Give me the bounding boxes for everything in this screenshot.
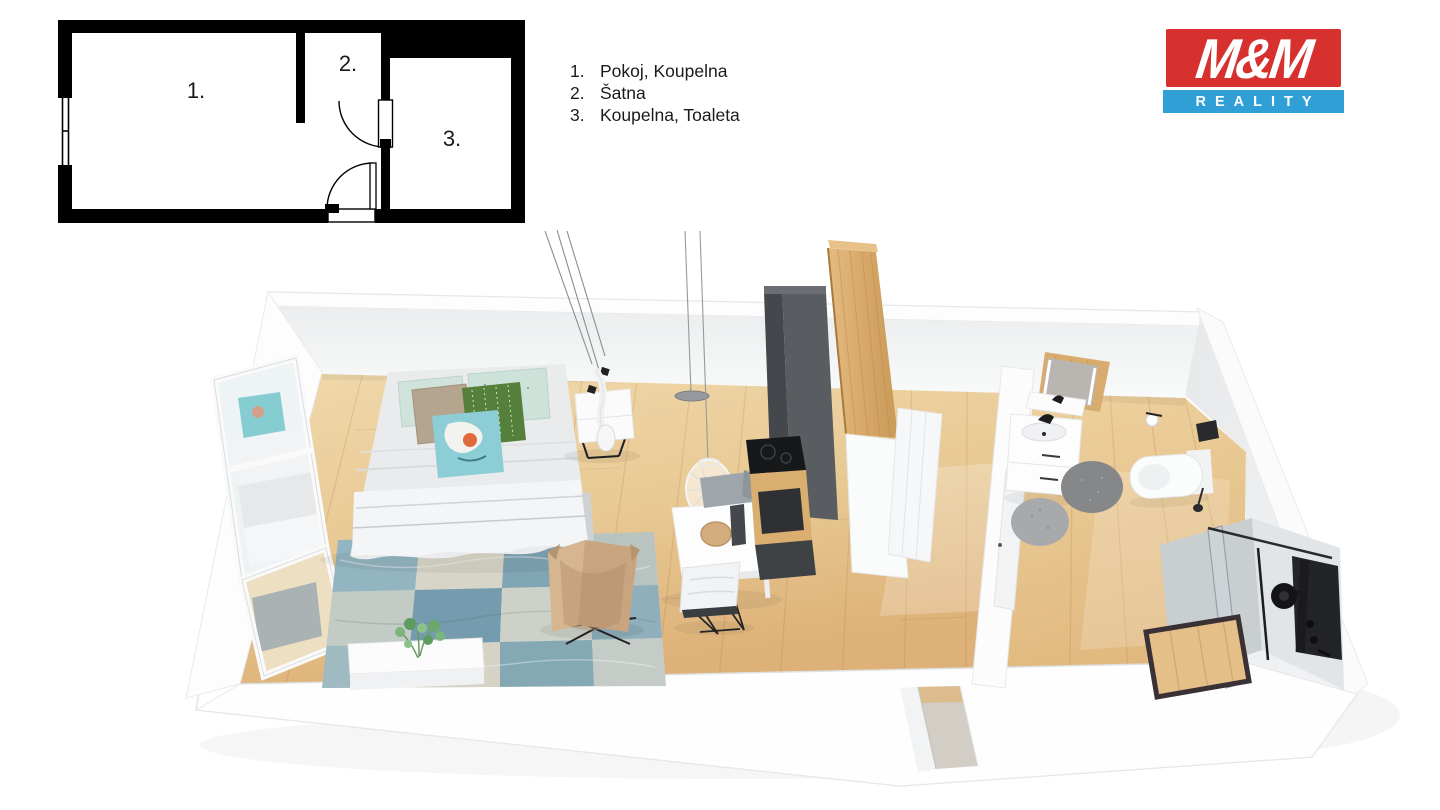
legend-item: 3. Koupelna, Toaleta <box>570 104 740 126</box>
room1-number: 1. <box>187 78 205 103</box>
plan-walls <box>58 20 525 223</box>
chair-cloth <box>680 562 740 612</box>
plan-room-numbers: 1. 2. 3. <box>187 51 461 151</box>
cooktop <box>746 436 806 474</box>
legend-item: 1. Pokoj, Koupelna <box>570 60 740 82</box>
logo-subtitle: REALITY <box>1186 94 1320 110</box>
legend-item-label: Šatna <box>600 82 646 104</box>
plan-door-entrance <box>325 163 376 222</box>
door-handle <box>998 543 1002 547</box>
legend-item-number: 3. <box>570 104 600 126</box>
legend: 1. Pokoj, Koupelna 2. Šatna 3. Koupelna,… <box>570 60 740 126</box>
legend-item-label: Pokoj, Koupelna <box>600 60 727 82</box>
floorplan-3d <box>186 230 1400 786</box>
tablet <box>730 504 746 546</box>
floorplan-2d: 1. 2. 3. <box>58 20 525 223</box>
room3-number: 3. <box>443 126 461 151</box>
legend-item-number: 2. <box>570 82 600 104</box>
shower <box>1140 518 1344 702</box>
disc-pendant <box>675 391 709 401</box>
entrance-threshold <box>918 686 964 703</box>
legend-item: 2. Šatna <box>570 82 740 104</box>
flyer-page: 1. 2. 3. <box>0 0 1440 810</box>
plan-door-room3 <box>339 100 393 148</box>
plan-window <box>62 98 69 165</box>
brand-logo: M&M REALITY <box>1163 29 1344 113</box>
logo-title: M&M <box>1193 26 1315 91</box>
legend-item-number: 1. <box>570 60 600 82</box>
logo-reality-bar: REALITY <box>1163 90 1344 113</box>
legend-item-label: Koupelna, Toaleta <box>600 104 740 126</box>
room2-number: 2. <box>339 51 357 76</box>
wood-bowl <box>701 522 731 546</box>
logo-mm-box: M&M <box>1166 29 1341 87</box>
console-table <box>348 638 484 690</box>
butterfly-chair <box>540 540 644 644</box>
